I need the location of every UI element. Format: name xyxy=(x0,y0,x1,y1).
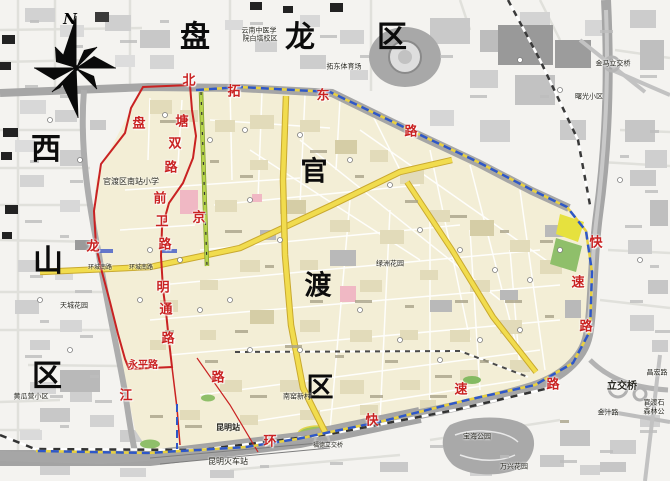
road-name-label: 路 xyxy=(161,333,174,346)
place-label: 昆明火车站 xyxy=(208,458,248,466)
road-name-label: 卫 xyxy=(155,216,168,229)
district-label: 西 xyxy=(31,135,61,165)
road-name-label: 拓 xyxy=(227,86,240,99)
road-name-label: 快 xyxy=(365,415,378,428)
road-name-label: 永平路 xyxy=(128,361,158,371)
road-name-label: 速 xyxy=(571,277,584,290)
road-name-label: 明 xyxy=(156,282,169,295)
place-label: 环城南路 xyxy=(88,265,112,271)
place-label: 森林公 xyxy=(644,409,665,416)
road-name-label: 双 xyxy=(168,138,181,151)
district-label: 渡 xyxy=(305,273,332,300)
district-label: 区 xyxy=(32,362,62,392)
compass-north-label: N xyxy=(63,10,77,28)
road-name-label: 路 xyxy=(404,126,417,139)
place-label: 天城花园 xyxy=(60,303,88,310)
road-name-label: 北 xyxy=(182,75,195,88)
place-label: 曙光小区 xyxy=(575,94,603,101)
place-label: 云南中医学 xyxy=(242,28,277,35)
district-label: 龙 xyxy=(285,23,315,53)
road-name-label: 环 xyxy=(263,436,276,449)
road-name-label: 通 xyxy=(159,304,172,317)
road-name-label: 前 xyxy=(153,193,166,206)
road-name-label: 路 xyxy=(579,321,592,334)
road-name-label: 快 xyxy=(589,237,602,250)
road-name-label: 路 xyxy=(211,372,224,385)
district-label: 山 xyxy=(33,247,63,277)
road-name-label: 盘 xyxy=(132,118,145,131)
road-name-label: 京 xyxy=(192,212,205,225)
place-label: 官渡石 xyxy=(644,400,665,407)
district-label: 官 xyxy=(301,159,328,186)
place-label: 金马立交桥 xyxy=(596,61,631,68)
road-name-label: 龙 xyxy=(86,241,99,254)
road-name-label: 东 xyxy=(316,90,329,103)
road-name-label: 路 xyxy=(546,379,559,392)
district-label: 区 xyxy=(377,23,407,53)
place-label: 环城南路 xyxy=(129,265,153,271)
road-name-label: 塘 xyxy=(175,116,188,129)
place-label: 立交桥 xyxy=(607,382,637,392)
place-label: 南窑新村 xyxy=(283,394,311,401)
road-name-label: 路 xyxy=(158,239,171,252)
place-label: 万兴花园 xyxy=(500,464,528,471)
road-name-label: 江 xyxy=(119,390,132,403)
district-label: 盘 xyxy=(180,23,210,53)
place-label: 昆明站 xyxy=(216,424,240,432)
city-map[interactable]: N 盘龙区西山区官渡区北塘双路前卫路明通路盘龙江永平路京拓东路环快速路快速路路云… xyxy=(0,0,670,481)
place-label: 拓东体育场 xyxy=(327,64,362,71)
place-label: 金汁路 xyxy=(598,410,619,417)
road-name-label: 速 xyxy=(454,384,467,397)
place-label: 绿洲花园 xyxy=(376,261,404,268)
place-label: 官渡区南站小学 xyxy=(103,178,159,186)
place-label: 福德立交桥 xyxy=(313,443,343,449)
place-label: 院白塔校区 xyxy=(243,36,278,43)
map-labels: N 盘龙区西山区官渡区北塘双路前卫路明通路盘龙江永平路京拓东路环快速路快速路路云… xyxy=(0,0,670,481)
place-label: 昌宏路 xyxy=(647,370,668,377)
place-label: 宝海公园 xyxy=(463,434,491,441)
road-name-label: 路 xyxy=(164,162,177,175)
place-label: 黄瓜营小区 xyxy=(14,394,49,401)
